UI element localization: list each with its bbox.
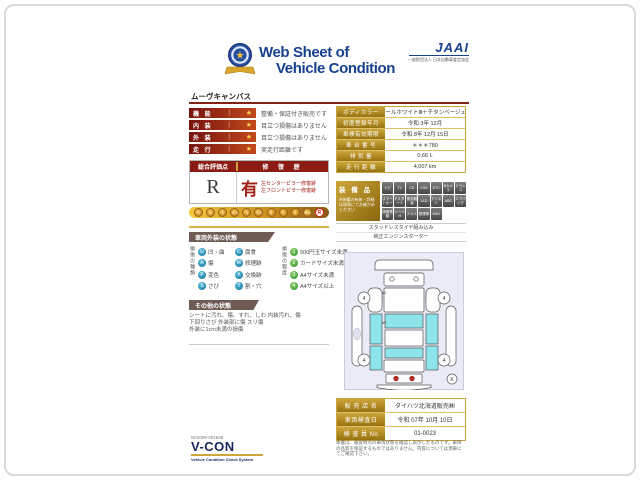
damage-type-icon: W [235, 259, 243, 267]
rating-row: 走 行 | ★ 実走行距離です [189, 144, 330, 154]
sales-info-label: 販 売 店 名 [337, 399, 385, 412]
rating-row: 外 装 | ★ 目立つ損傷はありません [189, 132, 330, 142]
jaai-logo: JAAI [399, 41, 469, 54]
damage-type-text: 凹・曲 [208, 248, 225, 256]
equipment-extra-notes: スタッドレスタイヤ組み込み純正エンジンスターター [336, 223, 466, 242]
vehicle-info-table: ボディカラー パールホワイトⅢ＋チタンベージュM 初度登録年月 令和 3年 12… [336, 106, 466, 173]
rating-separator: | [228, 134, 230, 140]
left-column: 機 能 | ★ 整備・保証付き販売です 内 装 | ★ 目立つ損傷はありません [189, 108, 330, 345]
damage-type-icon: T [235, 282, 243, 290]
equipment-badge: 禁煙車 [418, 208, 429, 220]
repair-flag: 有 [241, 175, 258, 200]
rating-comment: 実走行距離です [261, 145, 303, 154]
rating-separator: | [228, 122, 230, 128]
evaluation-grade: R [190, 172, 237, 203]
rating-comment: 目立つ損傷はありません [261, 133, 327, 142]
rating-label: 走 行 | ★ [189, 144, 256, 154]
repair-note-2: 左フロントピラー修復跡 [261, 188, 316, 195]
star-icon: ★ [246, 109, 252, 117]
wheel-mark: 4 [363, 296, 366, 302]
equipment-badge: CD [406, 182, 417, 194]
damage-type-label: 損傷の種類 [189, 246, 196, 292]
repair-history-header: 修 復 歴 [238, 162, 328, 171]
vehicle-info-value: 令和 3年 12月 [385, 118, 465, 128]
jaai-rule [409, 55, 469, 56]
other-condition-lines: シートに汚れ、傷、すれ、しわ 内装汚れ、傷下回りさび 外装部に傷 スリ傷外装に1… [189, 313, 330, 334]
vehicle-info-row: 排 気 量 0.66 L [337, 151, 465, 162]
sales-info-row: 検 査 員 No 01-0023 [337, 427, 465, 440]
equipment-extra-note: スタッドレスタイヤ組み込み [336, 224, 466, 233]
vcon-subtitle: Vehicle Condition Check System [191, 457, 263, 462]
damage-degree-text: A4サイズ以上 [300, 282, 334, 290]
rating-row: 内 装 | ★ 目立つ損傷はありません [189, 120, 330, 130]
rating-category: 内 装 [193, 121, 213, 130]
damage-type-item: S さび [198, 281, 235, 293]
vehicle-info-row: 初度登録年月 令和 3年 12月 [337, 118, 465, 129]
damage-type-text: さび [208, 282, 219, 290]
vehicle-info-label: ボディカラー [337, 107, 385, 117]
equipment-badge: ABS [443, 195, 454, 207]
title-line2: Vehicle Condition [276, 61, 395, 77]
damage-type-icon: X [235, 271, 243, 279]
sales-info-label: 車両検査日 [337, 413, 385, 426]
equipment-badge-grid: ナビTVCDDVDETCBカメラドラレコスマートキーPスタート衝突軽減LEDアイ… [380, 181, 466, 221]
section-divider-gold [189, 226, 329, 228]
sheet-card: ★ Web Sheet of Vehicle Condition JAAI 一般… [4, 4, 636, 476]
grade-scale-badge: 4 [242, 208, 251, 217]
repair-note-1: 左センターピラー修復跡 [261, 181, 316, 188]
equipment-badge: DVD [418, 182, 429, 194]
rating-separator: | [228, 146, 230, 152]
page-title: Web Sheet of Vehicle Condition [259, 45, 395, 77]
other-condition-line: 下回りさび 外装部に傷 スリ傷 [189, 320, 330, 327]
pillar-damage-marker: W [382, 290, 386, 295]
equipment-badge: Bカメラ [443, 182, 454, 194]
title-line1: Web Sheet of [259, 45, 395, 61]
damage-type-text: 割・穴 [245, 282, 262, 290]
vehicle-info-row: 車 台 番 号 ＊＊＊780 [337, 140, 465, 151]
vehicle-info-value: 令和 8年 12月 15日 [385, 129, 465, 139]
rear-damage-dot [394, 376, 399, 381]
evaluation-score-header: 総合評価点 [190, 162, 238, 171]
rating-comment: 整備・保証付き販売です [261, 109, 327, 118]
vehicle-info-label: 排 気 量 [337, 151, 385, 161]
sales-info-label: 検 査 員 No [337, 427, 385, 440]
grade-scale-badge: S [194, 208, 203, 217]
grade-scale-badge: 1 [291, 208, 300, 217]
web-sheet-content: ★ Web Sheet of Vehicle Condition JAAI 一般… [189, 36, 469, 468]
damage-type-icon: C [235, 248, 243, 256]
damage-degree-icon: 1 [290, 248, 298, 256]
repair-history: 有 左センターピラー修復跡 左フロントピラー修復跡 [237, 172, 328, 203]
vehicle-damage-diagram: 4 4 4 4 K W W [344, 252, 464, 390]
grade-scale-badge: 4.5 [230, 208, 239, 217]
damage-type-icon: U [198, 248, 206, 256]
star-icon: ★ [246, 133, 252, 141]
vehicle-info-value: パールホワイトⅢ＋チタンベージュM [385, 107, 465, 117]
equipment-badge: エアバッグ [455, 195, 466, 207]
damage-type-item: X 交換跡 [235, 269, 275, 281]
damage-degree-icon: 4 [290, 282, 298, 290]
rating-category: 機 能 [193, 109, 213, 118]
damage-type-icon: P [198, 271, 206, 279]
equipment-extra-note: 純正エンジンスターター [336, 233, 466, 241]
damage-type-item: U 凹・曲 [198, 246, 235, 258]
damage-type-item: P 変色 [198, 269, 235, 281]
header-divider [189, 102, 469, 104]
grade-scale-badge: 2 [279, 208, 288, 217]
exterior-condition-title: 車両外装の状態 [189, 232, 275, 242]
sales-info-row: 販 売 店 名 ダイハツ北海道販売㈱ [337, 399, 465, 413]
damage-degree-label: 損傷の程度 [281, 246, 288, 292]
vehicle-info-row: ボディカラー パールホワイトⅢ＋チタンベージュM [337, 107, 465, 118]
grade-scale-badge: RA [303, 208, 312, 217]
rating-list: 機 能 | ★ 整備・保証付き販売です 内 装 | ★ 目立つ損傷はありません [189, 108, 330, 154]
equipment-badge: 衝突軽減 [406, 195, 417, 207]
damage-type-text: 交換跡 [245, 271, 262, 279]
evaluation-header: 総合評価点 修 復 歴 [190, 161, 328, 172]
damage-type-item: W 修理跡 [235, 258, 275, 270]
grade-scale-badge: 5 [218, 208, 227, 217]
grade-scale-badge: 3 [267, 208, 276, 217]
jaai-logo-block: JAAI 一般財団法人 日本自動車査定協会 [399, 41, 469, 63]
evaluation-body: R 有 左センターピラー修復跡 左フロントピラー修復跡 [190, 172, 328, 203]
damage-type-text: 傷 [208, 259, 214, 267]
damage-type-item: C 腐食 [235, 246, 275, 258]
rating-label: 内 装 | ★ [189, 120, 256, 130]
vcon-logo: V-CON [191, 440, 263, 453]
damage-type-item: T 割・穴 [235, 281, 275, 293]
other-condition-title: その他の状態 [189, 300, 259, 310]
star-icon: ★ [246, 145, 252, 153]
damage-degree-icon: 2 [290, 259, 298, 267]
vehicle-info-value: 4,007 km [385, 162, 465, 172]
pillar-damage-marker: W [382, 320, 386, 325]
sales-info-value: 01-0023 [385, 427, 465, 440]
vcon-logo-block: N01009-001629 V-CON Vehicle Condition Ch… [191, 435, 263, 462]
damage-legend: 損傷の種類 U 凹・曲 C 腐食 A 傷 [189, 246, 330, 292]
damage-degree-text: A4サイズ未満 [300, 271, 334, 279]
equipment-badge: 両側電動 [382, 208, 393, 220]
equipment-badge: アイスト [431, 195, 442, 207]
wheel-mark: 4 [443, 358, 446, 364]
right-column: ボディカラー パールホワイトⅢ＋チタンベージュM 初度登録年月 令和 3年 12… [336, 106, 469, 441]
damage-type-icon: A [198, 259, 206, 267]
equipment-badge: ETC [431, 182, 442, 194]
svg-text:★: ★ [236, 51, 245, 62]
damage-type-text: 変色 [208, 271, 219, 279]
rating-label: 機 能 | ★ [189, 108, 256, 118]
equipment-note: ※装備の有無・詳細は現車にてお確かめください [339, 197, 377, 212]
vehicle-info-value: ＊＊＊780 [385, 140, 465, 150]
rating-label: 外 装 | ★ [189, 132, 256, 142]
grade-scale-bar: S654.543.5321RAR [189, 207, 329, 218]
repair-notes: 左センターピラー修復跡 左フロントピラー修復跡 [261, 181, 316, 194]
grade-scale-badge: R [315, 208, 324, 217]
vehicle-info-label: 車検有効期限 [337, 129, 385, 139]
disclaimer-text: 本書は、検査時点の車両状態を確認し表示したものです。車両の品質を保証するものでは… [336, 440, 466, 457]
rating-category: 走 行 [193, 145, 213, 154]
damage-type-text: 修理跡 [245, 259, 262, 267]
side-mark [354, 328, 361, 340]
sales-info-value: 令和 07年 10月 10日 [385, 413, 465, 426]
grade-scale-badge: 3.5 [254, 208, 263, 217]
equipment-title: 装 備 品 [339, 184, 377, 194]
equipment-section: 装 備 品 ※装備の有無・詳細は現車にてお確かめください ナビTVCDDVDET… [336, 181, 466, 221]
star-icon: ★ [246, 121, 252, 129]
vehicle-info-value: 0.66 L [385, 151, 465, 161]
equipment-badge: スマートキー [382, 195, 393, 207]
damage-type-text: 腐食 [245, 248, 256, 256]
rear-damage-dot [410, 376, 415, 381]
equipment-badge: TV [394, 182, 405, 194]
vehicle-info-label: 初度登録年月 [337, 118, 385, 128]
sales-info-value: ダイハツ北海道販売㈱ [385, 399, 465, 412]
equipment-badge: シートH [394, 208, 405, 220]
equipment-title-box: 装 備 品 ※装備の有無・詳細は現車にてお確かめください [336, 181, 380, 221]
equipment-badge: ドラレコ [455, 182, 466, 194]
equipment-badge: Pスタート [394, 195, 405, 207]
evaluation-table: 総合評価点 修 復 歴 R 有 左センターピラー修復跡 左フロントピラー修復跡 [189, 160, 329, 204]
other-condition-line: シートに汚れ、傷、すれ、しわ 内装汚れ、傷 [189, 313, 330, 320]
vehicle-model-name: ムーヴキャンバス [191, 91, 251, 102]
sales-info-row: 車両検査日 令和 07年 10月 10日 [337, 413, 465, 427]
vcon-underline [191, 454, 263, 456]
vehicle-info-label: 走 行 距 離 [337, 162, 385, 172]
damage-degree-icon: 3 [290, 271, 298, 279]
jaai-emblem-icon: ★ [225, 42, 255, 80]
rating-separator: | [228, 110, 230, 116]
jaai-subtext: 一般財団法人 日本自動車査定協会 [399, 57, 469, 63]
equipment-badge: 4WD [431, 208, 442, 220]
wheel-mark: 4 [363, 358, 366, 364]
equipment-badge: LED [418, 195, 429, 207]
section-divider-gray [189, 344, 329, 345]
other-condition-line: 外装に1cm未満の損傷 [189, 327, 330, 334]
vehicle-info-row: 車検有効期限 令和 8年 12月 15日 [337, 129, 465, 140]
equipment-badge: ナビ [382, 182, 393, 194]
rating-category: 外 装 [193, 133, 213, 142]
rating-comment: 目立つ損傷はありません [261, 121, 327, 130]
vehicle-info-row: 走 行 距 離 4,007 km [337, 162, 465, 172]
wheel-mark: 4 [443, 296, 446, 302]
grade-scale-badge: 6 [206, 208, 215, 217]
rating-row: 機 能 | ★ 整備・保証付き販売です [189, 108, 330, 118]
damage-type-item: A 傷 [198, 258, 235, 270]
damage-type-icon: S [198, 282, 206, 290]
equipment-badge: アルミ [406, 208, 417, 220]
vehicle-info-label: 車 台 番 号 [337, 140, 385, 150]
sales-info-table: 販 売 店 名 ダイハツ北海道販売㈱ 車両検査日 令和 07年 10月 10日 … [336, 398, 466, 441]
damage-type-list: U 凹・曲 C 腐食 A 傷 W 修理跡 [198, 246, 275, 292]
